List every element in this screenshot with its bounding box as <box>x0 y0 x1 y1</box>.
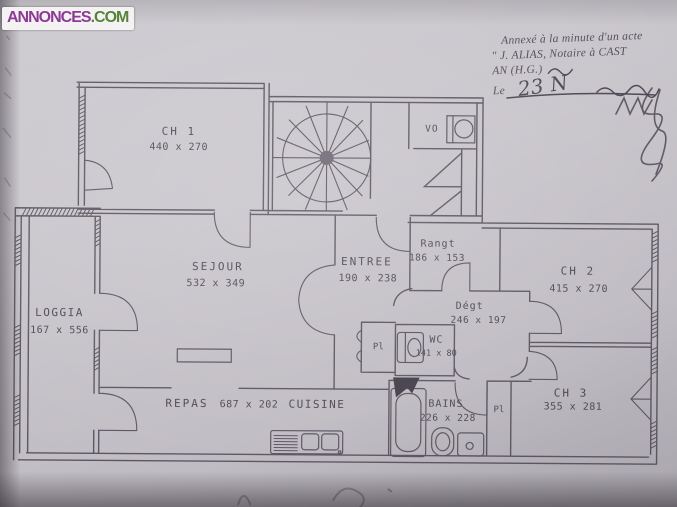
bottom-scribbles <box>238 488 391 507</box>
furniture-rect <box>177 349 231 362</box>
room-dims-degt: 246 x 197 <box>451 315 507 326</box>
bidet-icon <box>432 428 454 456</box>
room-label-cuisine: CUISINE <box>288 398 345 411</box>
room-label-wc: WC <box>429 335 443 346</box>
edge-scribbles <box>2 36 11 221</box>
room-dims-rangt: 186 x 153 <box>409 252 465 263</box>
room-label-rangt: Rangt <box>420 239 455 250</box>
room-dims-entree: 190 x 238 <box>338 273 397 284</box>
room-label-loggia: LOGGIA <box>35 306 84 319</box>
room-label-entree: ENTREE <box>341 255 393 268</box>
kitchen-sink-icon <box>271 431 343 455</box>
room-label-pl-sejour: Pl <box>373 342 384 352</box>
room-dims-sejour: 532 x 349 <box>186 278 245 289</box>
room-label-vo: VO <box>425 124 439 135</box>
signature-icon <box>612 86 676 186</box>
room-label-degt: Dégt <box>456 300 484 312</box>
stamp-date-label: Le <box>493 85 506 97</box>
room-dims-ch3: 355 x 281 <box>544 401 603 412</box>
room-label-ch3: CH 3 <box>554 387 589 400</box>
room-label-bains: BAINS <box>428 399 463 410</box>
room-labels: CH 1 440 x 270 VO SEJOUR 532 x 349 ENTRE… <box>29 121 609 425</box>
washing-machine-icon <box>447 116 475 143</box>
room-dims-ch1: 440 x 270 <box>149 142 208 153</box>
room-label-repas: REPAS <box>165 397 208 410</box>
room-label-sejour: SEJOUR <box>192 260 244 273</box>
spiral-stair-icon <box>272 102 371 212</box>
annonces-logo: ANNONCES.COM <box>2 7 134 30</box>
room-label-pl-ch3: Pl <box>493 405 504 415</box>
washbasin-icon <box>458 433 484 456</box>
listing-photo: ANNONCES.COM <box>0 0 677 507</box>
room-dims-wc: 141 x 80 <box>416 349 457 359</box>
logo-com-text: .COM <box>91 9 129 26</box>
room-dims-bains: 226 x 228 <box>420 413 476 424</box>
room-dims-loggia: 167 x 556 <box>30 325 89 336</box>
room-label-ch1: CH 1 <box>162 125 197 138</box>
room-dims-ch2: 415 x 270 <box>549 283 608 294</box>
duct-icon <box>393 377 420 397</box>
room-dims-repas: 687 x 202 <box>220 399 279 410</box>
logo-annonces-text: ANNONCES <box>7 9 91 26</box>
room-label-ch2: CH 2 <box>561 265 596 278</box>
